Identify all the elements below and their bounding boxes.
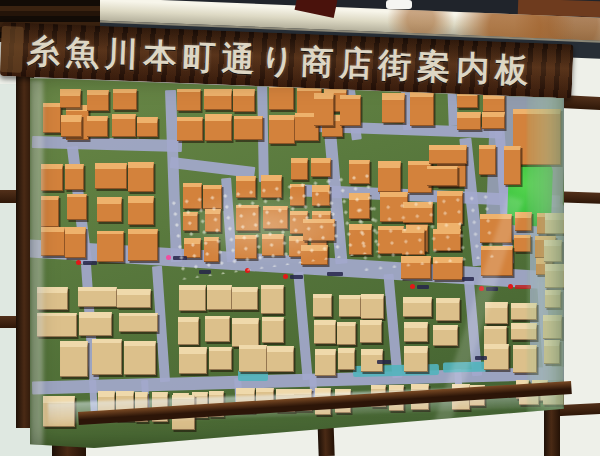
building <box>514 235 531 252</box>
marker-label <box>486 287 498 291</box>
building <box>207 285 232 310</box>
street <box>32 136 182 152</box>
marker-label <box>199 270 211 274</box>
building <box>378 161 400 192</box>
building <box>340 95 361 126</box>
marker-dot <box>479 286 484 291</box>
building <box>234 116 263 140</box>
building <box>545 213 567 234</box>
building <box>67 194 87 219</box>
building <box>37 287 68 310</box>
marker-dot <box>166 255 171 260</box>
building <box>87 116 109 137</box>
building <box>183 183 202 209</box>
building <box>263 206 288 229</box>
building <box>65 227 86 257</box>
building <box>60 89 82 109</box>
building <box>382 93 405 122</box>
building <box>37 313 77 337</box>
building <box>349 160 371 184</box>
marker-label <box>462 277 474 281</box>
building <box>41 196 59 227</box>
building <box>349 224 373 255</box>
marker-dot <box>508 284 513 289</box>
building <box>401 256 431 278</box>
building <box>43 103 61 133</box>
building <box>78 287 117 308</box>
marker-label <box>475 356 487 360</box>
building <box>209 347 232 370</box>
white-cloth-detail <box>386 0 412 9</box>
building <box>128 162 153 192</box>
building <box>404 322 428 342</box>
marker-label <box>327 272 343 276</box>
building <box>315 349 336 375</box>
marker-dot <box>245 268 250 273</box>
building <box>291 158 308 180</box>
building <box>261 285 284 314</box>
building <box>233 89 255 112</box>
building <box>545 290 561 309</box>
building <box>203 185 221 209</box>
building <box>183 212 198 231</box>
building <box>511 303 538 319</box>
marker-dot <box>76 260 81 265</box>
building <box>457 112 481 130</box>
building <box>314 320 336 344</box>
building <box>402 229 425 254</box>
building <box>429 145 468 164</box>
building <box>112 114 136 137</box>
building <box>205 114 231 141</box>
building <box>117 289 150 308</box>
building <box>314 93 334 126</box>
building <box>480 214 512 243</box>
building <box>410 91 434 126</box>
street <box>293 272 312 380</box>
building <box>87 90 109 111</box>
building <box>436 298 460 321</box>
building <box>403 202 434 223</box>
building <box>232 318 258 347</box>
building <box>179 347 207 374</box>
building <box>236 176 256 198</box>
building <box>313 294 332 317</box>
building <box>479 145 496 175</box>
building <box>92 339 122 375</box>
building <box>427 166 458 186</box>
building <box>349 193 370 220</box>
building <box>544 240 563 262</box>
building <box>113 89 137 110</box>
signboard-end-grain <box>0 26 24 73</box>
building <box>204 89 232 110</box>
building <box>236 205 259 231</box>
building <box>544 340 561 363</box>
building <box>482 112 505 129</box>
building <box>205 209 220 231</box>
water-channel <box>238 370 268 381</box>
building <box>301 245 328 265</box>
building <box>338 348 355 370</box>
building <box>232 287 258 310</box>
building <box>269 115 295 143</box>
building <box>128 196 154 225</box>
building <box>43 396 75 427</box>
building <box>543 315 562 339</box>
building <box>79 312 112 336</box>
building <box>204 237 219 262</box>
building <box>179 285 206 311</box>
building <box>484 344 508 370</box>
wall-mullion-bottom-right <box>544 406 560 456</box>
marker-label <box>83 261 97 265</box>
building <box>124 341 156 376</box>
building <box>437 191 463 224</box>
building <box>513 345 537 373</box>
building <box>267 346 294 372</box>
building <box>311 158 330 177</box>
building <box>137 117 158 138</box>
building <box>361 294 384 318</box>
marker-dot <box>283 274 288 279</box>
building <box>60 341 88 377</box>
building <box>504 146 521 186</box>
photo-of-shopping-street-map-board: 糸魚川本町通り商店街案内板 <box>0 0 600 456</box>
building <box>177 89 202 111</box>
marker-label <box>417 285 429 289</box>
building <box>485 302 508 323</box>
building <box>177 117 203 141</box>
marker-dot <box>410 284 415 289</box>
building <box>303 219 334 241</box>
building <box>337 322 355 344</box>
marker-label <box>515 285 531 289</box>
marker-label <box>377 360 391 364</box>
building <box>41 227 65 256</box>
building <box>184 238 201 258</box>
building <box>97 231 124 262</box>
street <box>165 90 182 262</box>
building <box>97 197 122 223</box>
building <box>457 93 478 108</box>
building <box>128 229 158 262</box>
building <box>433 257 463 280</box>
building <box>360 320 382 342</box>
building <box>433 229 461 251</box>
building <box>95 163 127 189</box>
building <box>378 226 404 255</box>
building <box>290 184 305 206</box>
building <box>65 164 84 190</box>
building <box>481 246 514 276</box>
building <box>511 323 537 340</box>
building <box>262 317 284 343</box>
building <box>312 185 330 206</box>
building <box>433 325 458 346</box>
building <box>205 316 230 343</box>
building <box>261 175 282 198</box>
building <box>339 295 361 317</box>
building <box>545 264 565 288</box>
building <box>41 164 64 191</box>
building <box>262 234 284 256</box>
building <box>239 345 267 372</box>
building <box>119 313 158 333</box>
marker-label <box>290 275 303 279</box>
building <box>404 346 428 372</box>
building <box>61 115 82 138</box>
building <box>403 297 432 317</box>
building <box>235 235 257 259</box>
building <box>515 212 531 231</box>
marker-label <box>173 256 187 260</box>
building <box>178 317 199 345</box>
